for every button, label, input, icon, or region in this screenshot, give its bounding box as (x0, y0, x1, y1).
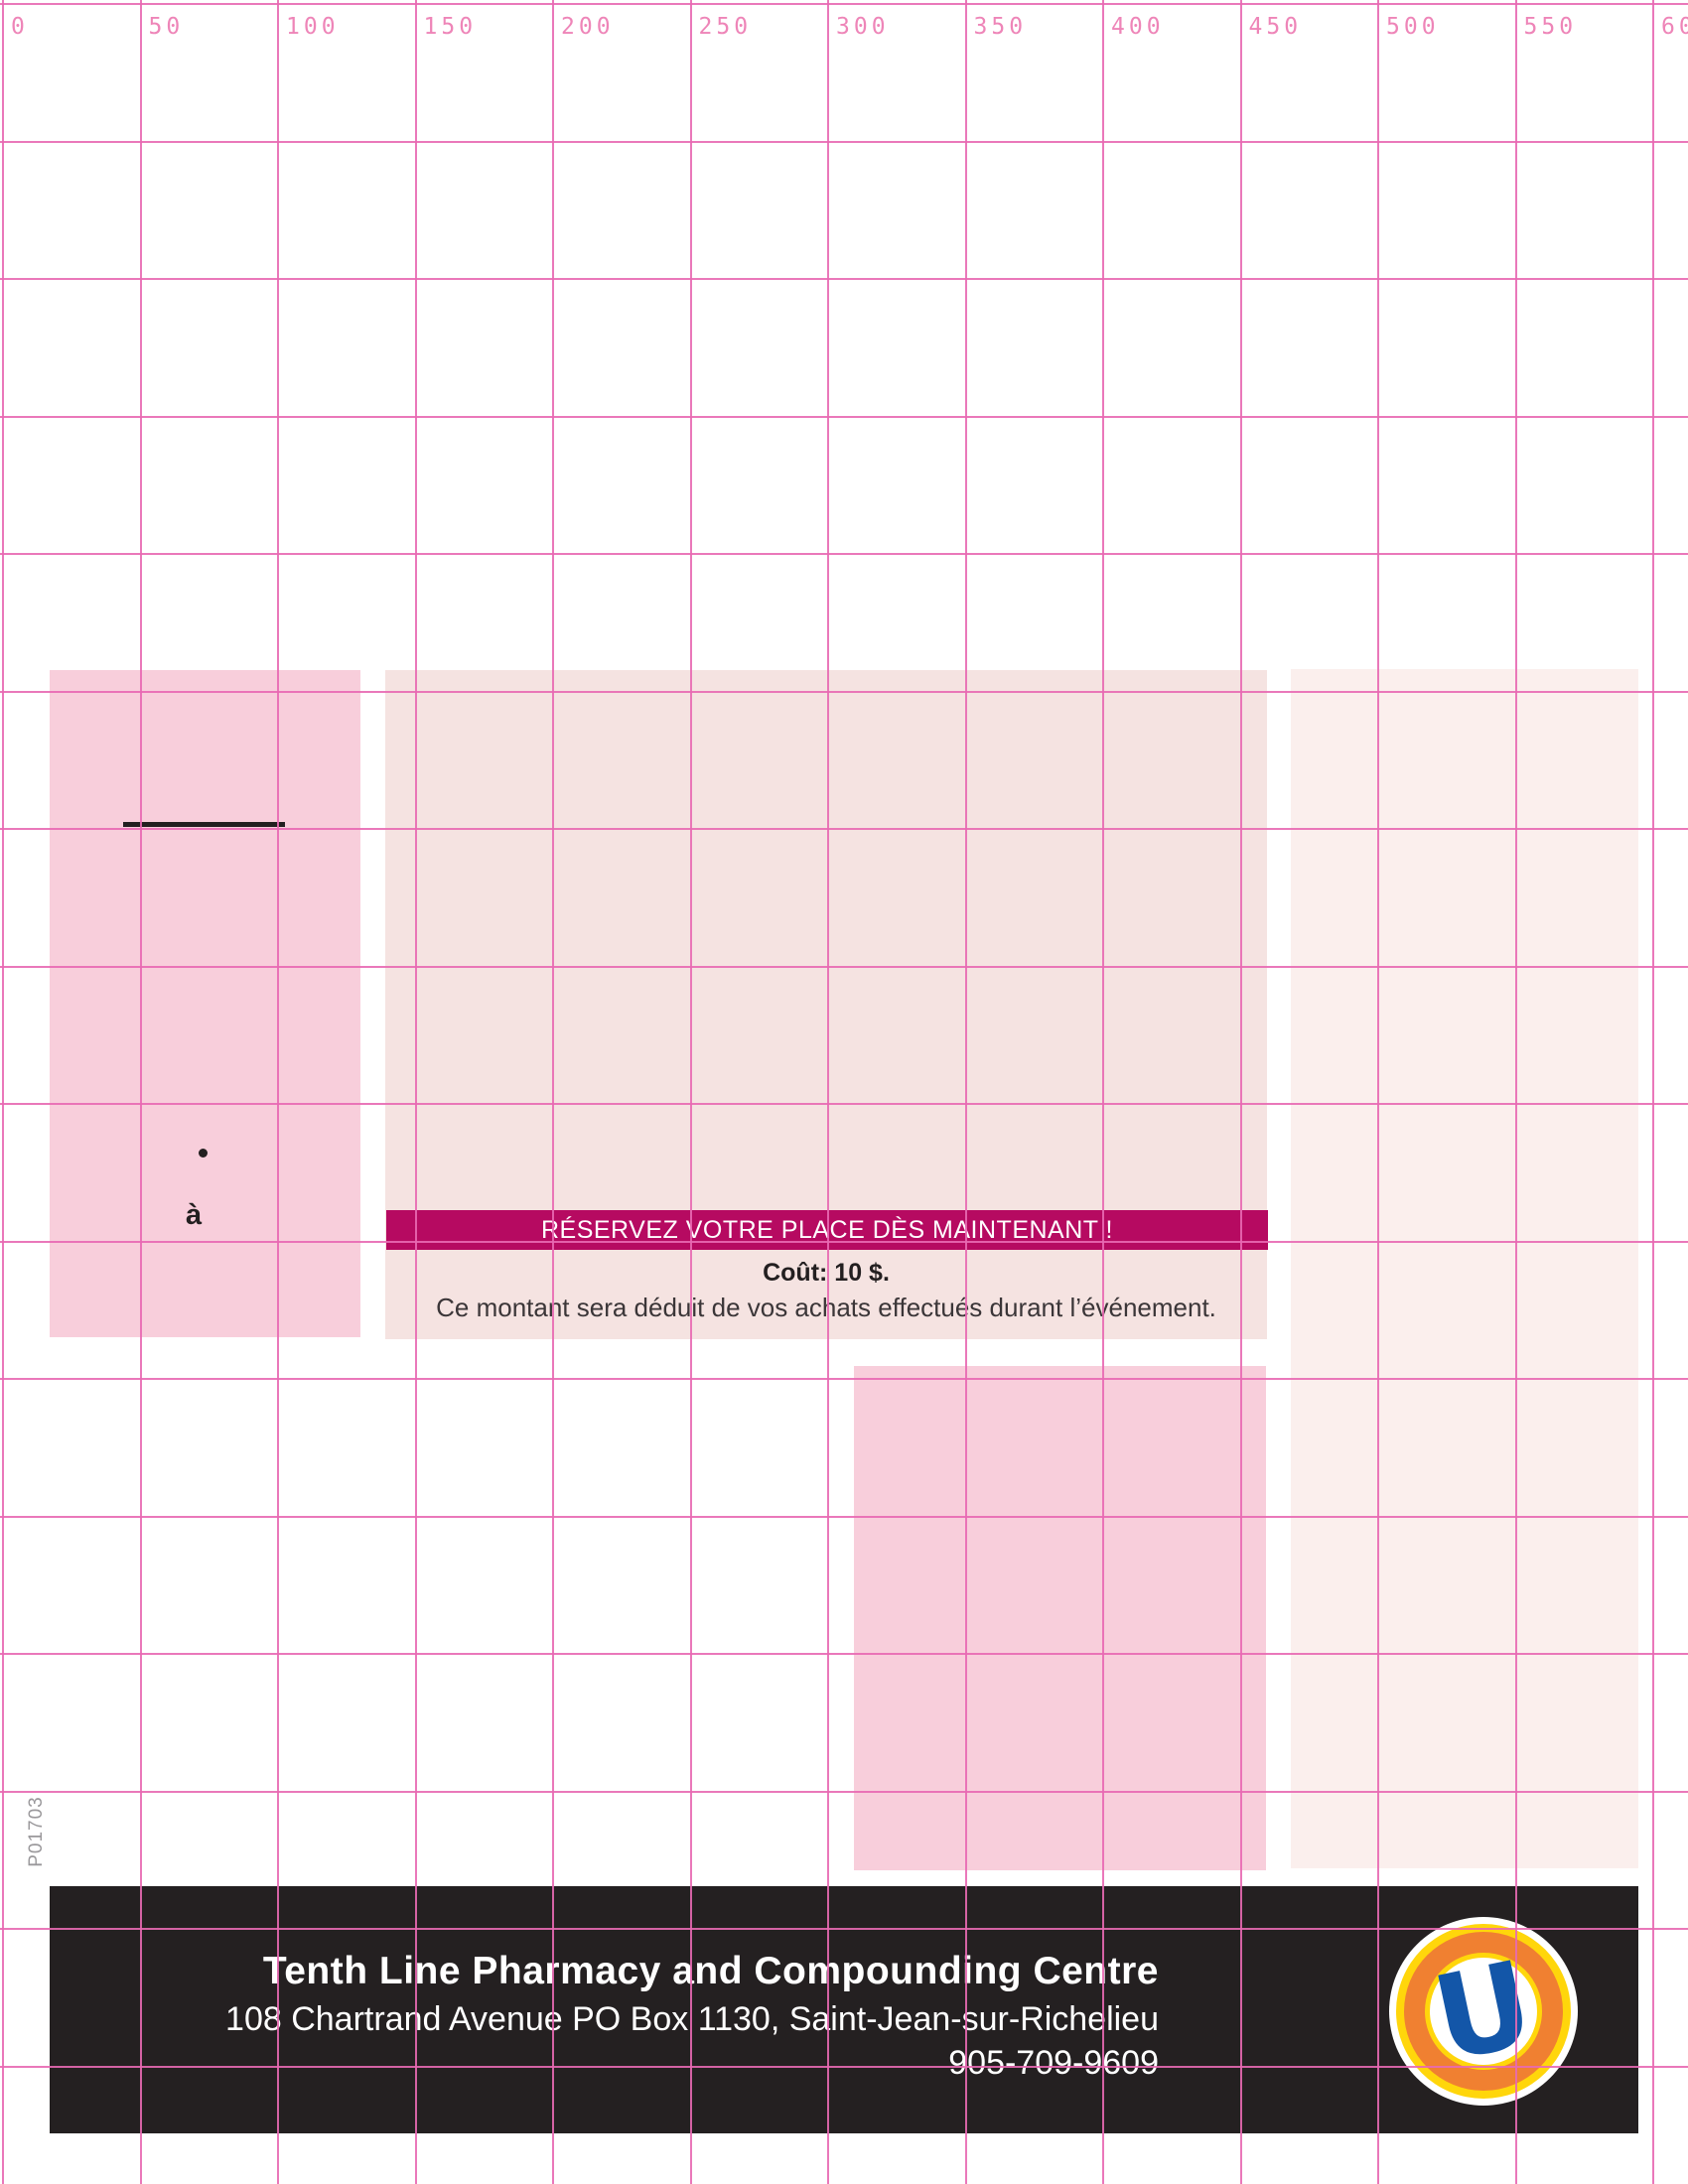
preposition-a-label: à (186, 1199, 202, 1232)
ruler-label: 300 (836, 14, 890, 40)
ruler-label: 100 (286, 14, 340, 40)
grid-line-vertical (2, 0, 4, 2184)
left-pink-block (50, 670, 360, 1337)
grid-line-vertical (1652, 0, 1654, 2184)
ruler-label: 150 (424, 14, 478, 40)
ruler-label: 350 (974, 14, 1028, 40)
bottom-pink-block (854, 1366, 1266, 1870)
ruler-label: 50 (149, 14, 185, 40)
pharmacy-phone: 905-709-9609 (67, 2042, 1159, 2084)
ruler-label: 200 (561, 14, 615, 40)
ruler-label: 250 (699, 14, 753, 40)
horizontal-rule-mark (123, 822, 285, 827)
footer-banner: Tenth Line Pharmacy and Compounding Cent… (50, 1886, 1638, 2133)
grid-line-horizontal (0, 3, 1688, 5)
pharmacy-name: Tenth Line Pharmacy and Compounding Cent… (67, 1946, 1159, 1997)
grid-line-horizontal (0, 553, 1688, 555)
grid-line-horizontal (0, 416, 1688, 418)
cost-label: Coût: 10 $. (385, 1257, 1267, 1289)
uniprix-logo: U (1389, 1917, 1578, 2106)
footer-text: Tenth Line Pharmacy and Compounding Cent… (67, 1946, 1159, 2084)
ruler-label: 550 (1524, 14, 1578, 40)
bullet-dot (199, 1149, 208, 1158)
ruler-label: 0 (11, 14, 29, 40)
flyer-proof-page: à RÉSERVEZ VOTRE PLACE DÈS MAINTENANT ! … (0, 0, 1688, 2184)
grid-line-horizontal (0, 278, 1688, 280)
logo-u-letter: U (1371, 1899, 1595, 2122)
ruler-label: 400 (1111, 14, 1165, 40)
ruler-label: 600 (1661, 14, 1688, 40)
grid-line-horizontal (0, 141, 1688, 143)
ruler-label: 450 (1249, 14, 1303, 40)
right-pink-column (1291, 669, 1638, 1868)
proof-code: P01703 (26, 1796, 48, 1867)
ruler-label: 500 (1386, 14, 1440, 40)
pharmacy-address: 108 Chartrand Avenue PO Box 1130, Saint-… (67, 1997, 1159, 2042)
reserve-banner: RÉSERVEZ VOTRE PLACE DÈS MAINTENANT ! (386, 1210, 1268, 1250)
cost-note: Ce montant sera déduit de vos achats eff… (346, 1291, 1307, 1324)
